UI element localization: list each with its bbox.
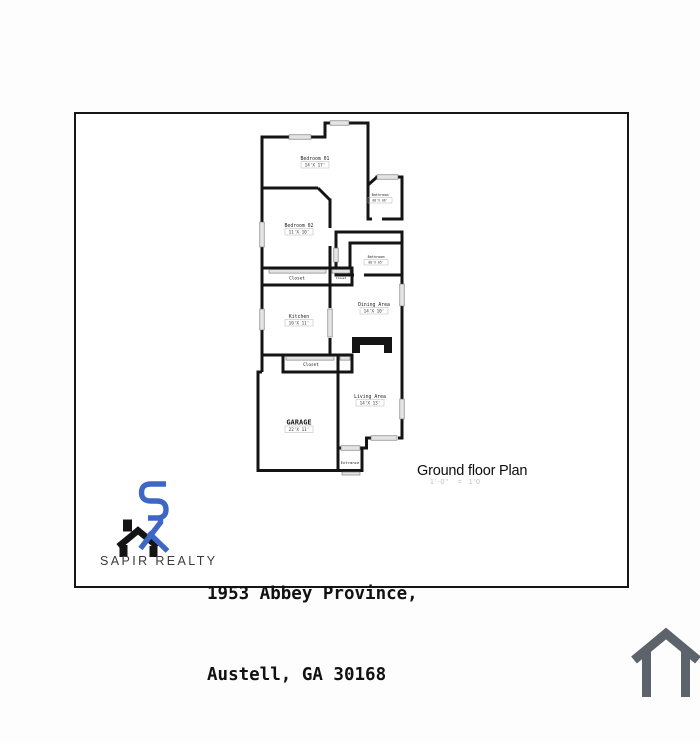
sapir-sr-house-logo xyxy=(119,484,168,557)
room-dims-bathroom-1: 08'X 06' xyxy=(372,199,387,203)
floor-plan-walls xyxy=(257,122,404,473)
fireplace-icon xyxy=(352,337,392,353)
room-label-bathroom-2: Bathroom xyxy=(368,255,385,259)
room-dims-bedroom-01: 14'X 17' xyxy=(305,163,326,169)
room-label-living: Living Area xyxy=(354,394,386,400)
company-name: SAPIR REALTY xyxy=(100,554,217,568)
room-label-bedroom-02: Bedroom 02 xyxy=(285,223,314,229)
room-label-kitchen: Kitchen xyxy=(289,314,309,320)
room-label-closet-2: Closet xyxy=(303,362,319,368)
room-label-dining: Dining Area xyxy=(358,302,390,308)
address-line-2: Austell, GA 30168 xyxy=(207,662,418,689)
room-dims-living: 14'X 13' xyxy=(360,401,381,407)
room-dims-kitchen: 10'X 11' xyxy=(289,321,310,327)
address-line-1: 1953 Abbey Province, xyxy=(207,581,418,608)
room-label-bathroom-1: Bathroom xyxy=(372,193,389,197)
room-label-closet-1: Closet xyxy=(289,276,305,282)
room-dims-bedroom-02: 11'X 10' xyxy=(289,230,310,236)
room-label-closet-1b: Closet xyxy=(336,276,347,280)
room-label-garage: GARAGE xyxy=(286,419,311,427)
room-dims-garage: 22'X 11' xyxy=(289,427,310,433)
page: Bedroom 01 14'X 17' Bathroom 08'X 06' Be… xyxy=(0,0,700,700)
room-dims-bathroom-2: 08'X 05' xyxy=(368,261,383,265)
property-address: 1953 Abbey Province, Austell, GA 30168 xyxy=(207,527,418,743)
house-outline-icon xyxy=(634,634,698,698)
plan-title: Ground floor Plan xyxy=(417,463,527,479)
room-dims-dining: 14'X 10' xyxy=(364,309,385,315)
room-label-entrance: Entrance xyxy=(341,460,360,465)
logo-sr-monogram-icon xyxy=(141,484,168,551)
room-label-bedroom-01: Bedroom 01 xyxy=(301,156,330,162)
windows xyxy=(260,121,404,475)
plan-scale: 1'-0" = 1'0 xyxy=(430,479,481,486)
